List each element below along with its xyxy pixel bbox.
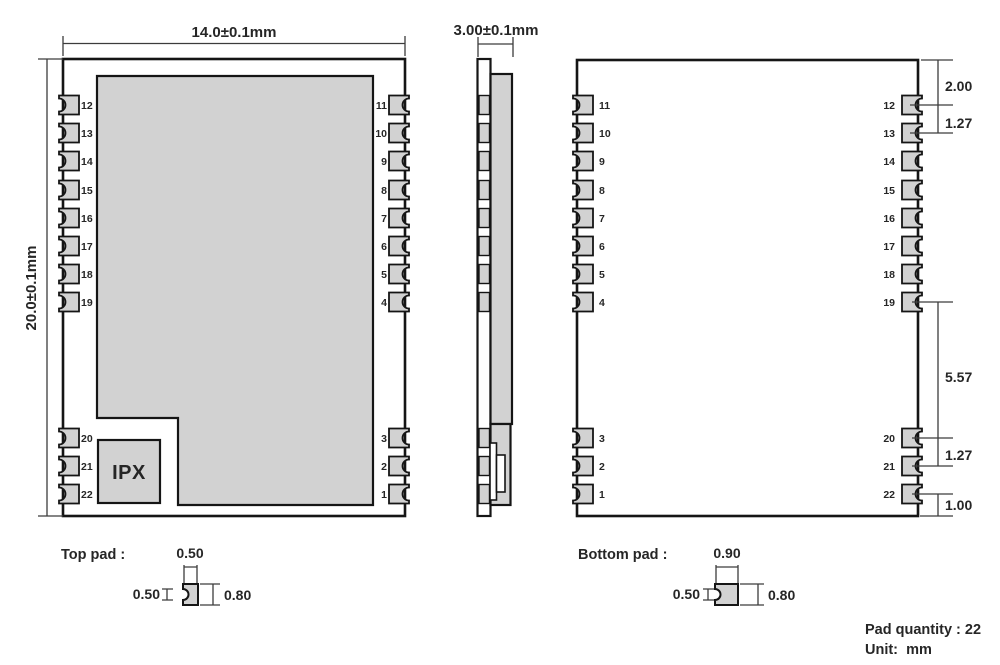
top-view-right-pin-number-3: 3 (381, 433, 387, 445)
top-pad-detail-label: Top pad : (61, 547, 125, 563)
side-view-castellations (479, 96, 490, 504)
pad-quantity-note: Pad quantity : 22 (865, 622, 981, 638)
bottom-view-right-pin-number-15: 15 (883, 185, 895, 197)
bottom-view-right-pin-number-13: 13 (883, 128, 895, 140)
side-view-ipx-base (490, 443, 497, 500)
top-pad-notch-bracket (162, 589, 173, 600)
top-view: IPX 12131415161718192021221110987654321 … (23, 24, 409, 516)
bottom-view-module-outline (577, 60, 918, 516)
bottom-view-right-pin-number-22: 22 (883, 489, 895, 501)
top-view-left-pin-number-12: 12 (81, 100, 93, 112)
side-view-castellation-9 (479, 429, 490, 448)
bottom-view-left-pin-number-2: 2 (599, 461, 605, 473)
bottom-view-left-pin-number-8: 8 (599, 185, 605, 197)
top-view-left-pin-number-20: 20 (81, 433, 93, 445)
bottom-view-left-pin-number-5: 5 (599, 269, 605, 281)
bottom-view-right-pin-number-17: 17 (883, 241, 895, 253)
top-view-left-pin-number-18: 18 (81, 269, 93, 281)
top-view-left-pin-number-19: 19 (81, 297, 93, 309)
drawing-canvas: IPX 12131415161718192021221110987654321 … (0, 0, 1000, 665)
dim-bottom-margin: 1.00 (945, 497, 972, 513)
bottom-pad-glyph (715, 584, 738, 605)
side-view-thickness-dim: 3.00±0.1mm (454, 22, 539, 39)
top-view-left-pin-number-16: 16 (81, 213, 93, 225)
side-view-castellation-6 (479, 237, 490, 256)
bottom-view-left-pin-number-11: 11 (599, 100, 610, 112)
bottom-pad-width-bracket (716, 565, 738, 584)
dim-pitch-bottom: 1.27 (945, 447, 972, 463)
top-view-right-pin-number-9: 9 (381, 156, 387, 168)
top-view-width-dim: 14.0±0.1mm (192, 24, 277, 41)
top-view-right-pin-number-4: 4 (381, 297, 387, 309)
bottom-pad-notch-bracket (703, 589, 714, 600)
bottom-view-left-pin-number-7: 7 (599, 213, 605, 225)
side-view-castellation-4 (479, 181, 490, 200)
bottom-pad-width-dim: 0.90 (713, 545, 740, 561)
top-view-height-dim: 20.0±0.1mm (23, 246, 40, 331)
bottom-view-left-pin-number-3: 3 (599, 433, 605, 445)
top-view-left-pin-number-15: 15 (81, 185, 93, 197)
top-view-right-pin-number-10: 10 (375, 128, 387, 140)
bottom-view-right-pin-number-18: 18 (883, 269, 895, 281)
side-view-castellation-3 (479, 152, 490, 171)
bottom-view-right-pin-number-12: 12 (883, 100, 895, 112)
top-pad-glyph (183, 584, 198, 605)
bottom-pad-height-dim: 0.80 (768, 587, 795, 603)
side-view-castellation-5 (479, 209, 490, 228)
top-pad-width-dim: 0.50 (176, 545, 203, 561)
bottom-view-left-pin-number-10: 10 (599, 128, 611, 140)
top-view-right-pin-number-1: 1 (381, 489, 387, 501)
bottom-view-left-pin-number-4: 4 (599, 297, 605, 309)
side-view-castellation-1 (479, 96, 490, 115)
top-pad-height-dim: 0.80 (224, 587, 251, 603)
bottom-pad-height-bracket (740, 584, 764, 605)
bottom-view: 11109876543211213141516171819202122 2.00… (573, 60, 972, 516)
unit-note: Unit: mm (865, 642, 932, 658)
bottom-view-right-pin-number-21: 21 (883, 461, 895, 473)
top-pad-notch-dim: 0.50 (133, 586, 160, 602)
top-view-right-pin-number-7: 7 (381, 213, 387, 225)
side-view-castellation-7 (479, 265, 490, 284)
bottom-view-left-pin-number-9: 9 (599, 156, 605, 168)
top-pad-width-bracket (184, 565, 197, 584)
dim-mid-gap: 5.57 (945, 369, 972, 385)
side-view-castellation-11 (479, 485, 490, 504)
module-dimension-drawing: IPX 12131415161718192021221110987654321 … (0, 0, 1000, 665)
side-view: 3.00±0.1mm (454, 22, 539, 516)
top-view-right-pin-number-8: 8 (381, 185, 387, 197)
bottom-pad-detail: Bottom pad : 0.90 0.50 0.80 (578, 545, 795, 605)
side-view-thickness-dim-lines (478, 37, 513, 57)
bottom-view-right-pin-number-14: 14 (883, 156, 895, 168)
top-view-left-pin-number-22: 22 (81, 489, 93, 501)
side-view-castellation-8 (479, 293, 490, 312)
side-view-castellation-10 (479, 457, 490, 476)
bottom-view-right-pin-number-19: 19 (883, 297, 895, 309)
bottom-view-right-pin-number-20: 20 (883, 433, 895, 445)
dim-pitch-top: 1.27 (945, 115, 972, 131)
bottom-view-right-pin-number-16: 16 (883, 213, 895, 225)
top-view-left-pin-number-17: 17 (81, 241, 93, 253)
top-view-left-pin-number-13: 13 (81, 128, 93, 140)
bottom-pad-notch-dim: 0.50 (673, 586, 700, 602)
top-view-right-pin-number-2: 2 (381, 461, 387, 473)
top-pad-detail: Top pad : 0.50 0.50 0.80 (61, 545, 251, 605)
dim-top-margin: 2.00 (945, 78, 972, 94)
top-view-right-pin-number-5: 5 (381, 269, 387, 281)
notes: Pad quantity : 22 Unit: mm (865, 622, 981, 658)
ipx-label: IPX (112, 462, 146, 484)
top-view-left-pin-number-21: 21 (81, 461, 93, 473)
bottom-view-left-pin-number-6: 6 (599, 241, 605, 253)
top-view-right-pin-number-11: 11 (376, 100, 387, 112)
bottom-pad-detail-label: Bottom pad : (578, 547, 667, 563)
side-view-castellation-2 (479, 124, 490, 143)
top-pad-height-bracket (200, 584, 220, 605)
side-view-shield (491, 74, 513, 424)
bottom-view-left-pin-number-1: 1 (599, 489, 605, 501)
top-view-right-pin-number-6: 6 (381, 241, 387, 253)
top-view-left-pin-number-14: 14 (81, 156, 93, 168)
side-view-ipx-body (497, 455, 506, 492)
